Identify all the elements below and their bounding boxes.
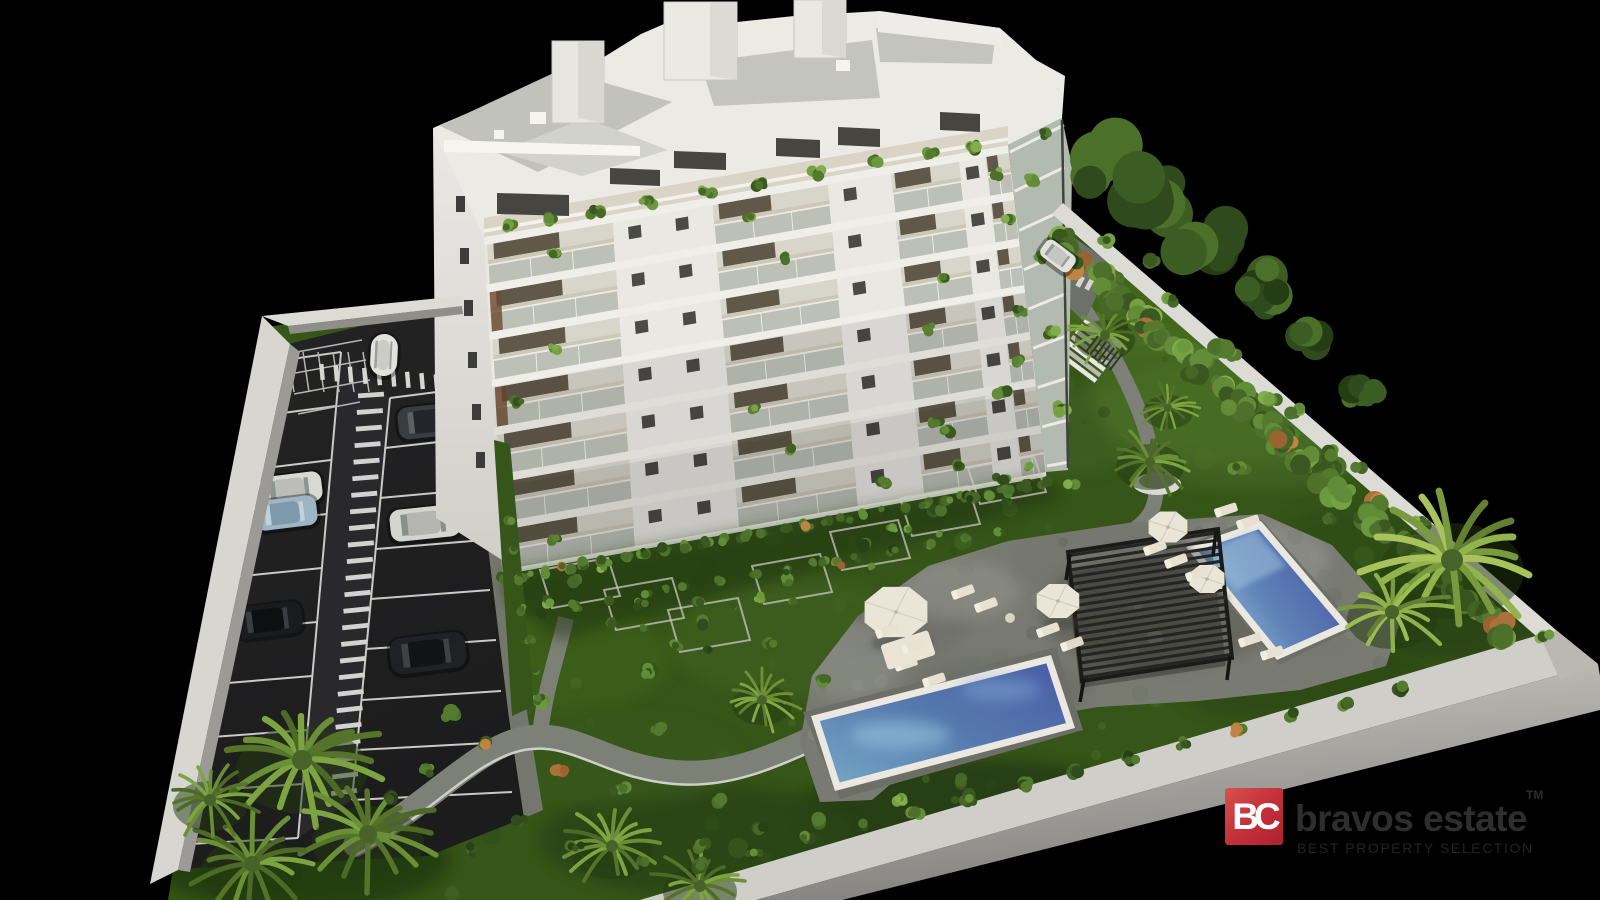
svg-text:BC: BC	[1232, 796, 1280, 837]
svg-text:BEST PROPERTY SELECTION: BEST PROPERTY SELECTION	[1297, 840, 1534, 856]
svg-text:bravos estate: bravos estate	[1295, 798, 1527, 839]
svg-text:TM: TM	[1526, 788, 1543, 802]
